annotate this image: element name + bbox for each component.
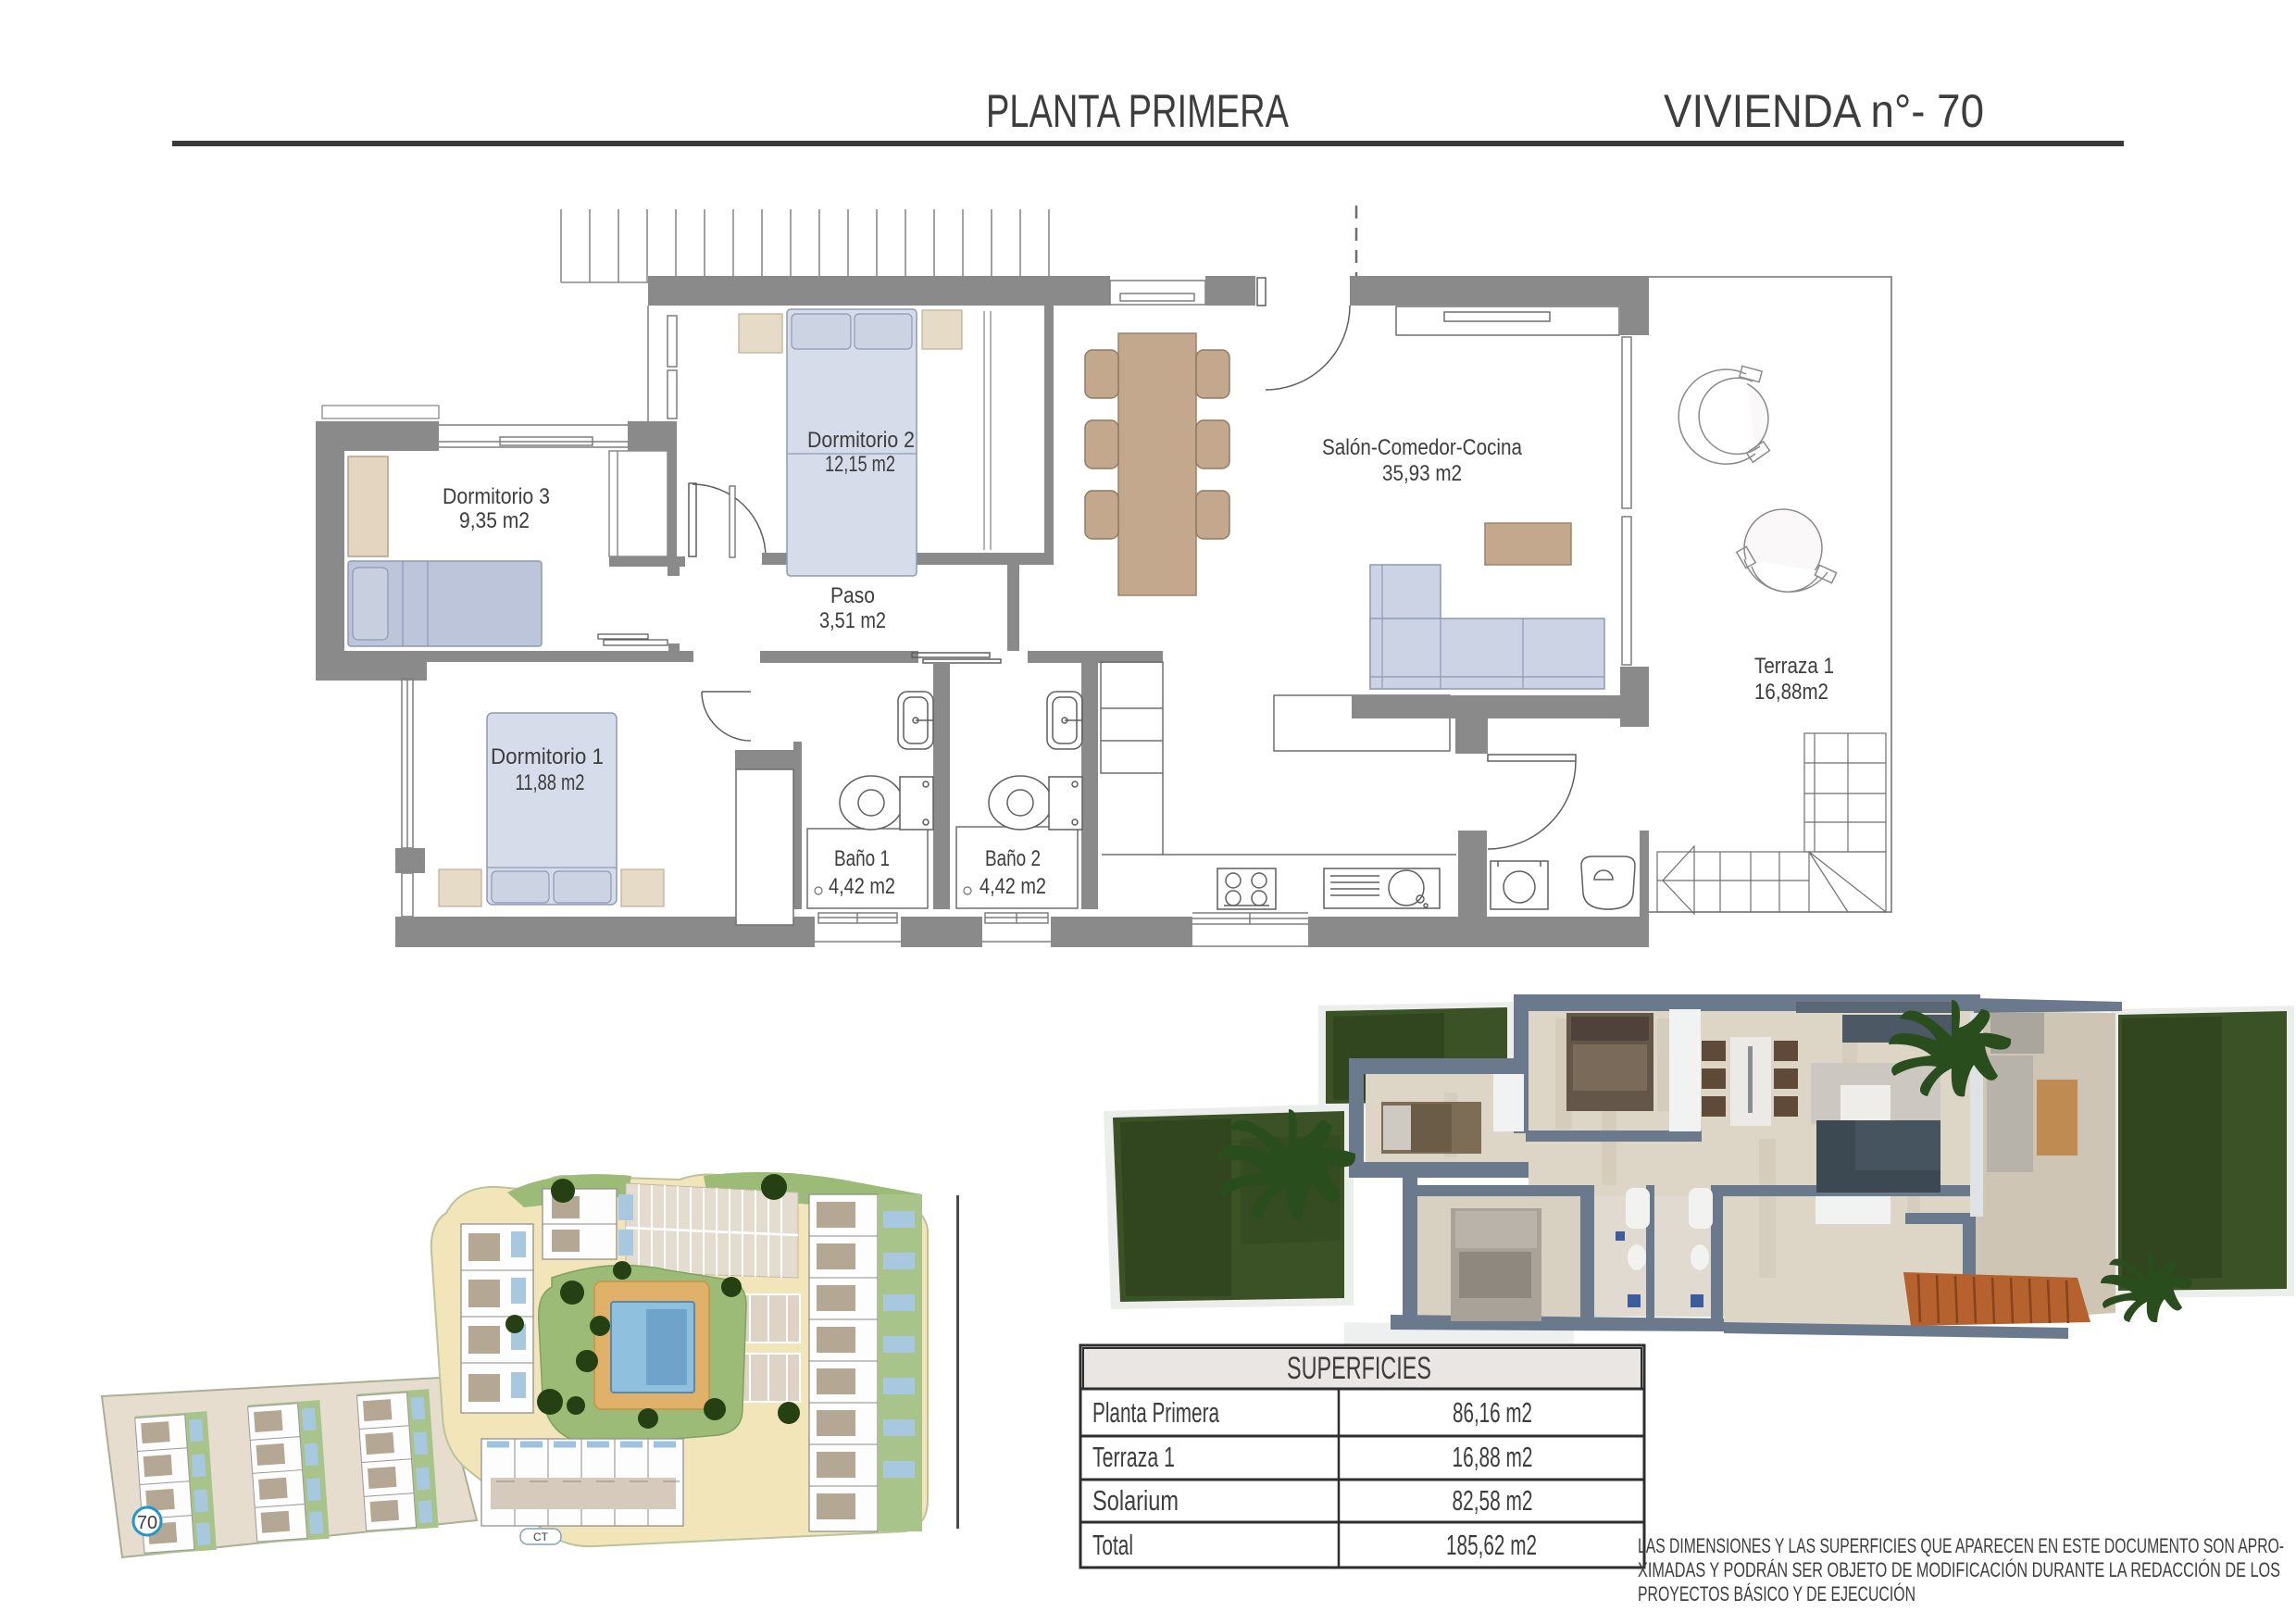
svg-text:Solarium: Solarium bbox=[1092, 1484, 1179, 1517]
svg-text:86,16 m2: 86,16 m2 bbox=[1453, 1396, 1532, 1429]
svg-text:Dormitorio 2: Dormitorio 2 bbox=[807, 428, 915, 453]
svg-text:Planta Primera: Planta Primera bbox=[1092, 1396, 1220, 1429]
svg-text:LAS DIMENSIONES Y LAS SUPERFIC: LAS DIMENSIONES Y LAS SUPERFICIES QUE AP… bbox=[1638, 1534, 2284, 1557]
svg-text:70: 70 bbox=[137, 1513, 157, 1533]
svg-text:Baño 2: Baño 2 bbox=[985, 846, 1041, 871]
svg-text:SUPERFICIES: SUPERFICIES bbox=[1287, 1351, 1431, 1386]
svg-text:11,88 m2: 11,88 m2 bbox=[516, 770, 585, 795]
svg-text:PLANTA PRIMERA: PLANTA PRIMERA bbox=[986, 85, 1289, 137]
svg-text:16,88 m2: 16,88 m2 bbox=[1453, 1441, 1533, 1473]
svg-text:Dormitorio 1: Dormitorio 1 bbox=[491, 744, 604, 769]
svg-text:3,51 m2: 3,51 m2 bbox=[819, 608, 886, 633]
svg-text:185,62 m2: 185,62 m2 bbox=[1446, 1529, 1537, 1561]
svg-text:Dormitorio 3: Dormitorio 3 bbox=[443, 484, 550, 509]
svg-text:35,93 m2: 35,93 m2 bbox=[1382, 461, 1462, 486]
svg-text:Terraza 1: Terraza 1 bbox=[1092, 1441, 1175, 1473]
svg-text:VIVIENDA n°- 70: VIVIENDA n°- 70 bbox=[1664, 85, 1984, 137]
svg-text:82,58 m2: 82,58 m2 bbox=[1453, 1484, 1533, 1517]
svg-text:XIMADAS Y PODRÁN SER OBJETO DE: XIMADAS Y PODRÁN SER OBJETO DE MODIFICAC… bbox=[1638, 1558, 2280, 1581]
svg-text:Terraza 1: Terraza 1 bbox=[1754, 654, 1834, 679]
svg-text:Baño 1: Baño 1 bbox=[834, 846, 890, 871]
svg-text:Total: Total bbox=[1092, 1529, 1133, 1561]
svg-text:16,88m2: 16,88m2 bbox=[1754, 680, 1828, 705]
svg-text:12,15 m2: 12,15 m2 bbox=[825, 452, 895, 477]
svg-text:4,42 m2: 4,42 m2 bbox=[980, 874, 1046, 899]
svg-text:9,35 m2: 9,35 m2 bbox=[459, 508, 530, 533]
svg-text:Salón-Comedor-Cocina: Salón-Comedor-Cocina bbox=[1322, 435, 1523, 460]
svg-text:4,42 m2: 4,42 m2 bbox=[829, 874, 895, 899]
svg-text:Paso: Paso bbox=[830, 583, 875, 608]
svg-text:PROYECTOS BÁSICO Y DE EJECUCIÓ: PROYECTOS BÁSICO Y DE EJECUCIÓN bbox=[1638, 1582, 1915, 1605]
svg-text:CT: CT bbox=[533, 1530, 549, 1543]
